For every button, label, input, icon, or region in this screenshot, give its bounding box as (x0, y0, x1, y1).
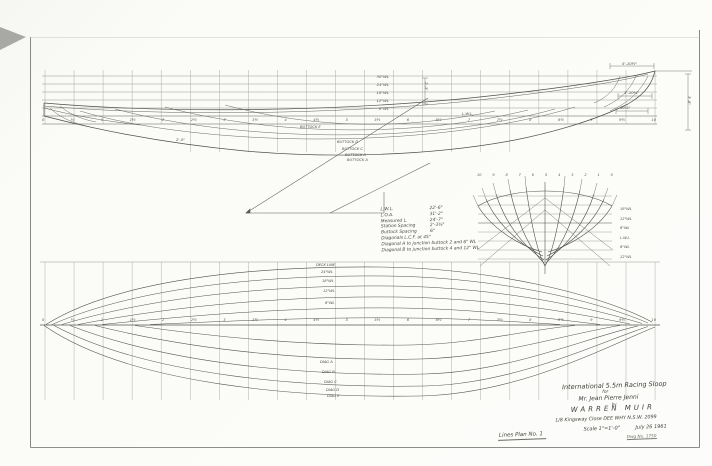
diagonal-label: DIAG D (326, 388, 339, 392)
title-block: International 5.5m Racing Sloop for Mr. … (494, 372, 706, 454)
station-number: 7 (519, 173, 521, 177)
station-number: 2½ (191, 318, 197, 322)
waterline-label: 18"WL (620, 205, 632, 215)
dimension-label: 2'-0" (176, 137, 185, 142)
halfbreadth-waterlines (46, 267, 652, 325)
diagonal-label: DIAG B (322, 370, 335, 374)
profile-station-numbers: 0½11½22½33½44½55½66½77½88½99½10 (42, 118, 656, 122)
diagonal-label: DIAG C (324, 380, 337, 384)
boat-type-title: International 5.5m Racing Sloop (562, 380, 667, 392)
waterline-label: L.W.L. (620, 234, 631, 244)
lwl-label: L.W.L. (462, 111, 474, 116)
dimension-label: 5'-10½" (622, 61, 637, 66)
station-number: 2 (162, 318, 164, 322)
address: 1/8 Kingsway Close DEE WHY N.S.W. 2099 (555, 415, 657, 424)
station-number: ½ (71, 318, 74, 322)
deck-line-label: DECK LINE (316, 263, 335, 267)
profile-buttock-curves (80, 105, 575, 139)
buttock-label: BUTTOCK D (337, 140, 358, 144)
buttock-label: BUTTOCK C (342, 147, 363, 151)
station-number: 2½ (191, 118, 197, 122)
waterline-label: 12"WL (377, 97, 389, 105)
station-number: 7 (468, 118, 470, 122)
station-number: 2 (584, 173, 586, 177)
diagonal-construction-lines (246, 98, 430, 213)
dimension-label: 10⅞" (620, 105, 630, 110)
station-number: 4 (284, 118, 286, 122)
station-number: 10 (651, 318, 656, 322)
station-number: 1 (598, 173, 600, 177)
buttock-label: BUTTOCK E (300, 125, 321, 129)
diagonal-label: DIAG E (327, 394, 339, 398)
date: July 26 1961 (635, 423, 666, 430)
station-number: 6 (407, 318, 409, 322)
station-number: 9½ (619, 318, 625, 322)
station-number: 7½ (497, 118, 503, 122)
waterline-label: 6"WL (379, 105, 389, 113)
drawing-sheet: 30"WL24"WL18"WL12"WL6"WL L.W.L. BUTTOCK … (0, 0, 712, 466)
halfbreadth-axes (40, 262, 660, 325)
waterline-label: 6"WL (620, 243, 630, 253)
station-number: 3½ (252, 318, 258, 322)
station-number: 5½ (374, 118, 380, 122)
dimension-label: 3'-8" (687, 96, 692, 105)
buttock-label: BUTTOCK A (347, 158, 368, 162)
station-number: 4½ (313, 318, 319, 322)
station-number: 7½ (497, 318, 503, 322)
station-number: 3½ (252, 118, 258, 122)
station-number: 8½ (558, 318, 564, 322)
station-number: 9 (590, 318, 592, 322)
station-number: 3 (223, 118, 225, 122)
profile-waterline-labels: 30"WL24"WL18"WL12"WL6"WL (372, 73, 389, 113)
station-number: 8 (529, 118, 531, 122)
designer-name: WARREN MUIR (571, 403, 655, 414)
scale-note: Scale 1"=1'-0" (583, 425, 620, 432)
waterline-label: 6"WL (620, 224, 630, 234)
client-name: Mr. Jean Pierre Jenni (578, 393, 638, 402)
spec-table: L.W.L.22'-6"L.O.A.31'-2"Measured L.24'-7… (380, 205, 484, 254)
waterline-label: 18"WL (377, 89, 389, 97)
station-number: 4 (284, 318, 286, 322)
waterline-label: 12"WL (620, 253, 632, 263)
waterline-label: 6"WL (325, 301, 335, 305)
waterline-label: 18"WL (322, 279, 334, 283)
station-number: 8 (506, 173, 508, 177)
buttock-label: BUTTOCK B (345, 153, 366, 157)
station-number: 9½ (619, 118, 625, 122)
station-number: 10 (651, 118, 656, 122)
waterline-label: 24"WL (321, 270, 333, 274)
waterline-label: 30"WL (377, 73, 389, 81)
sheet-footer-label: Lines Plan No. 1 (498, 431, 546, 441)
diagonal-label: DIAG A (320, 360, 333, 364)
waterline-label: 12"WL (620, 215, 632, 225)
station-number: 10 (477, 173, 481, 177)
station-number: 5 (545, 173, 547, 177)
station-number: 7 (468, 318, 470, 322)
station-number: 6 (407, 118, 409, 122)
station-number: 0 (611, 173, 613, 177)
station-number: 3 (571, 173, 573, 177)
station-number: 1½ (130, 118, 136, 122)
station-number: 4½ (313, 118, 319, 122)
station-number: ½ (71, 118, 74, 122)
station-number: 1 (101, 118, 103, 122)
station-number: 8½ (558, 118, 564, 122)
station-number: 5 (346, 118, 348, 122)
station-number: 1½ (130, 318, 136, 322)
station-number: 8 (529, 318, 531, 322)
station-number: 5 (346, 318, 348, 322)
station-number: 6½ (436, 118, 442, 122)
station-number: 9 (492, 173, 494, 177)
station-number: 6½ (436, 318, 442, 322)
station-number: 5½ (374, 318, 380, 322)
profile-waterlines (42, 76, 657, 108)
station-number: 2 (162, 118, 164, 122)
station-number: 9 (590, 118, 592, 122)
station-number: 4 (558, 173, 560, 177)
waterline-label: 24"WL (377, 81, 389, 89)
station-number: 0 (42, 118, 44, 122)
station-number: 6 (532, 173, 534, 177)
halfbreadth-station-numbers: 0½11½22½33½44½55½66½77½88½99½10 (42, 318, 656, 322)
bodyplan-station-numbers: 109876543210 (477, 173, 613, 177)
dimension-label: 1'-10¾" (624, 90, 639, 95)
station-number: 1 (101, 318, 103, 322)
station-number: 0 (42, 318, 44, 322)
waterline-label: 12"WL (323, 289, 335, 293)
dimension-label: 2'-3" (424, 82, 429, 91)
bodyplan-waterline-labels: 18"WL12"WL6"WLL.W.L.6"WL12"WL (620, 205, 632, 262)
station-number: 3 (223, 318, 225, 322)
drawing-number: Dwg No. 1750 (627, 433, 657, 440)
